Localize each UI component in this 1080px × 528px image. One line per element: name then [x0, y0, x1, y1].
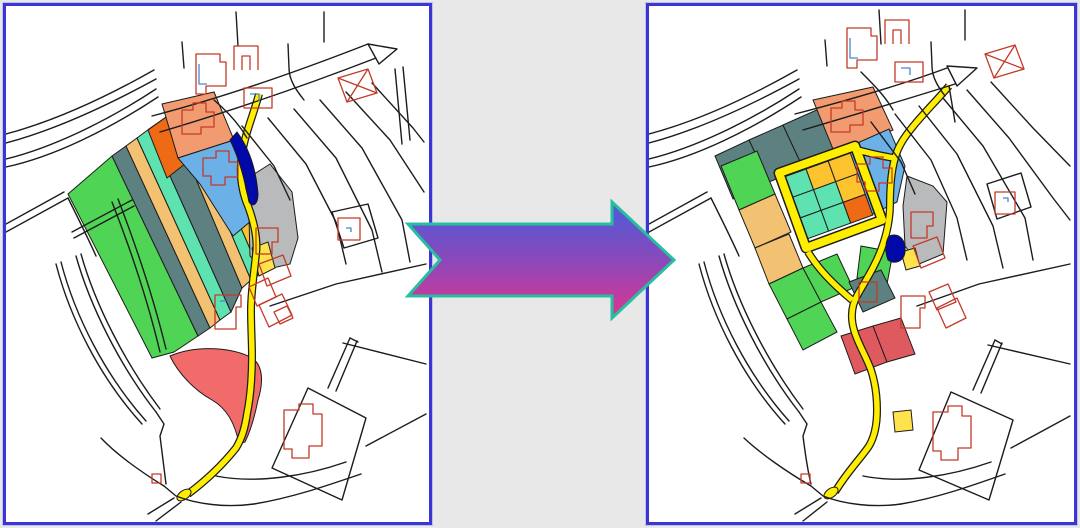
map-line — [943, 98, 1033, 260]
figure — [0, 0, 1080, 528]
map-line — [346, 92, 424, 192]
map-line — [328, 338, 350, 388]
map-panel-after — [646, 3, 1077, 525]
transform-arrow — [404, 198, 680, 322]
map-line — [101, 438, 164, 486]
map-line — [270, 264, 426, 306]
map-line — [366, 414, 426, 446]
building — [937, 298, 966, 328]
map-line — [879, 10, 881, 44]
map-line — [332, 204, 378, 248]
map-line — [995, 340, 1002, 344]
right-arrow-shape — [408, 202, 674, 318]
parcel-strips — [68, 92, 298, 444]
map-line — [182, 42, 184, 68]
map-line — [1011, 416, 1070, 448]
transform-arrow-icon — [404, 198, 680, 322]
map-line — [272, 388, 366, 500]
map-line — [803, 502, 827, 521]
map-line — [350, 338, 358, 342]
building-detail — [199, 64, 207, 84]
map-line — [973, 340, 995, 390]
building — [338, 218, 360, 240]
building-rotated — [338, 69, 377, 102]
map-line — [6, 192, 64, 224]
building — [885, 20, 909, 44]
building — [895, 62, 923, 82]
map-line — [825, 40, 827, 66]
building-detail — [850, 38, 858, 58]
map-line — [336, 341, 357, 391]
parcel — [893, 410, 913, 432]
map-line — [967, 90, 1070, 220]
map-line — [294, 109, 382, 272]
map-line — [947, 66, 977, 86]
map-line — [395, 69, 402, 144]
map-line — [216, 462, 346, 479]
map-line — [988, 345, 1070, 364]
map-line — [987, 173, 1031, 219]
building — [847, 28, 877, 68]
building — [196, 54, 226, 94]
map-line — [372, 83, 424, 142]
map-line — [6, 70, 154, 134]
map-line — [6, 198, 68, 232]
map-line — [288, 44, 304, 100]
map-line — [949, 86, 955, 122]
map-after — [649, 6, 1074, 522]
map-line — [236, 12, 238, 46]
building — [234, 46, 258, 70]
building-detail — [901, 68, 910, 75]
building-detail — [1003, 198, 1008, 202]
building — [901, 296, 925, 328]
map-line — [711, 198, 739, 256]
map-line — [981, 343, 1002, 393]
building — [284, 404, 322, 458]
map-line — [917, 264, 1070, 306]
ravine-line — [799, 412, 811, 484]
map-before — [6, 6, 429, 522]
building-detail — [346, 228, 351, 232]
building — [274, 306, 293, 324]
map-line — [156, 502, 181, 521]
map-line — [368, 44, 397, 64]
map-line — [795, 498, 821, 514]
map-line — [320, 100, 410, 262]
map-line — [403, 67, 410, 140]
parcel-grid — [715, 87, 947, 432]
map-panel-before — [3, 3, 432, 525]
map-line — [148, 498, 174, 514]
pond — [886, 235, 905, 262]
building-rotated — [985, 45, 1024, 78]
map-line — [343, 343, 426, 364]
map-line — [6, 79, 156, 143]
building — [259, 294, 292, 327]
building — [933, 406, 971, 460]
map-line — [991, 82, 1070, 166]
map-line — [649, 70, 797, 134]
map-line — [863, 462, 991, 479]
ravine-line — [156, 412, 166, 484]
figure-background: { "figure": { "kind": "before-after cada… — [0, 0, 1080, 528]
